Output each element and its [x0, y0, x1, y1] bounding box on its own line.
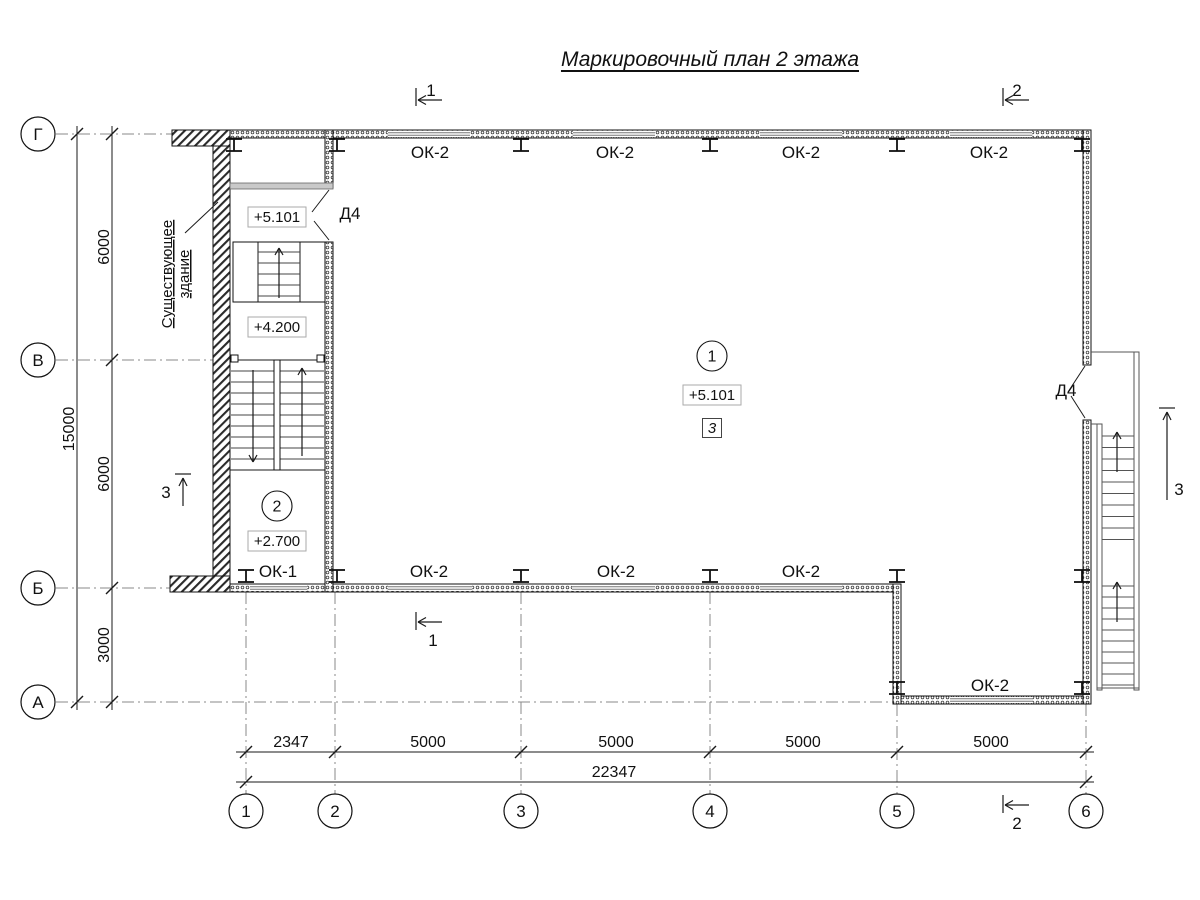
level-mark: +4.200 [254, 319, 300, 336]
level-mark: +5.101 [254, 209, 300, 226]
dim-value: 5000 [785, 734, 821, 751]
dim-value: 2347 [273, 734, 309, 751]
door-mark: Д4 [340, 204, 361, 223]
section-label: 2 [1012, 81, 1021, 100]
room-number: 1 [708, 349, 717, 366]
dim-value: 6000 [96, 456, 113, 492]
stair-wall-lower [325, 242, 333, 592]
grid-bubble-row-label: В [32, 351, 43, 370]
stair-divider [274, 360, 280, 470]
dim-value: 5000 [598, 734, 634, 751]
grid-bubble-col-label: 6 [1081, 802, 1090, 821]
window-mark: ОК-1 [259, 562, 297, 581]
grid-bubble-col-label: 4 [705, 802, 714, 821]
grid-bubble-row-label: Б [32, 579, 43, 598]
existing-wall [172, 130, 230, 146]
window [950, 131, 1032, 137]
dim-value-overall: 15000 [61, 407, 78, 452]
section-label: 2 [1012, 814, 1021, 833]
section-label: 3 [1174, 480, 1183, 499]
grid-bubble-col-label: 5 [892, 802, 901, 821]
existing-wall [213, 130, 230, 592]
window [572, 585, 655, 591]
door-swing [314, 221, 329, 240]
partition [230, 183, 333, 189]
window [950, 697, 1032, 703]
grid-bubble-row-label: А [32, 693, 44, 712]
plan-line [183, 478, 187, 486]
dim-value: 6000 [96, 229, 113, 265]
existing-note-line2: здание [176, 250, 193, 299]
plan-line [418, 100, 426, 105]
window-mark: ОК-2 [410, 562, 448, 581]
window [760, 131, 842, 137]
plan-line [418, 622, 426, 627]
existing-wall [170, 576, 230, 592]
stair-newel [231, 355, 238, 362]
dim-value: 3000 [96, 627, 113, 663]
square-mark: 3 [708, 420, 717, 437]
wall-right-upper [1083, 130, 1091, 365]
level-mark: +5.101 [689, 387, 735, 404]
window-mark: ОК-2 [971, 676, 1009, 695]
window [760, 585, 842, 591]
window [250, 585, 307, 591]
plan-line [418, 618, 426, 623]
grid-bubble-col-label: 2 [330, 802, 339, 821]
ext-stair-rail [1097, 424, 1102, 690]
section-label: 1 [428, 631, 437, 650]
ext-stair-rail [1134, 352, 1139, 690]
plan-line [418, 96, 426, 101]
window-mark: ОК-2 [970, 143, 1008, 162]
window-mark: ОК-2 [411, 143, 449, 162]
window [573, 131, 655, 137]
floor-plan-page: Маркировочный план 2 этажа ГВБА123456234… [0, 0, 1200, 900]
plan-line [1005, 801, 1013, 806]
grid-bubble-col-label: 3 [516, 802, 525, 821]
window [388, 131, 470, 137]
dim-value-overall: 22347 [592, 764, 637, 781]
grid-bubble-col-label: 1 [241, 802, 250, 821]
stair-newel [317, 355, 324, 362]
window-mark: ОК-2 [782, 143, 820, 162]
section-label: 1 [426, 81, 435, 100]
door-mark: Д4 [1056, 381, 1077, 400]
wall-right-lower [1083, 420, 1091, 704]
plan-line [1005, 100, 1013, 105]
level-mark: +2.700 [254, 533, 300, 550]
window [388, 585, 472, 591]
door-swing [312, 190, 329, 212]
window-mark: ОК-2 [596, 143, 634, 162]
dim-value: 5000 [410, 734, 446, 751]
dim-value: 5000 [973, 734, 1009, 751]
plan-line [1005, 805, 1013, 810]
window-mark: ОК-2 [597, 562, 635, 581]
floor-plan-drawing: ГВБА123456234750005000500050002234760006… [0, 0, 1200, 900]
room-number: 2 [273, 499, 282, 516]
existing-note-line1: Существующее [159, 220, 176, 328]
section-label: 3 [161, 483, 170, 502]
window-mark: ОК-2 [782, 562, 820, 581]
grid-bubble-row-label: Г [33, 125, 42, 144]
